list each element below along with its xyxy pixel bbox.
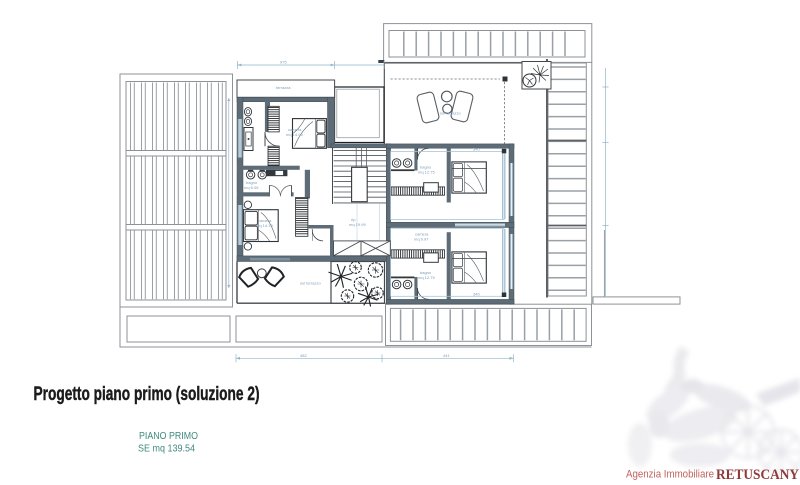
svg-text:mq 6.06: mq 6.06	[244, 185, 259, 190]
svg-text:RETUSCANY: RETUSCANY	[716, 467, 799, 480]
svg-text:SE mq 139.54: SE mq 139.54	[138, 444, 195, 455]
svg-text:340: 340	[473, 292, 480, 297]
svg-text:441: 441	[443, 353, 450, 358]
svg-text:sul terrazzo: sul terrazzo	[300, 281, 321, 286]
svg-text:terrazza: terrazza	[276, 85, 291, 90]
svg-text:340: 340	[473, 147, 480, 152]
svg-text:mq 19.99: mq 19.99	[349, 222, 366, 227]
svg-text:mq 14.06: mq 14.06	[286, 132, 303, 137]
svg-text:mq 12.75: mq 12.75	[418, 275, 435, 280]
svg-text:PIANO PRIMO: PIANO PRIMO	[139, 431, 198, 442]
svg-text:Progetto piano primo (soluzion: Progetto piano primo (soluzione 2)	[34, 383, 260, 405]
svg-text:mq 9.97: mq 9.97	[414, 237, 429, 242]
svg-text:mq 14.13: mq 14.13	[256, 223, 273, 228]
svg-text:975: 975	[280, 60, 287, 65]
svg-text:482: 482	[300, 353, 307, 358]
svg-text:sul terrazzo: sul terrazzo	[440, 111, 461, 116]
svg-text:mq 12.75: mq 12.75	[418, 170, 435, 175]
svg-text:Agenzia Immobiliare: Agenzia Immobiliare	[626, 469, 714, 481]
